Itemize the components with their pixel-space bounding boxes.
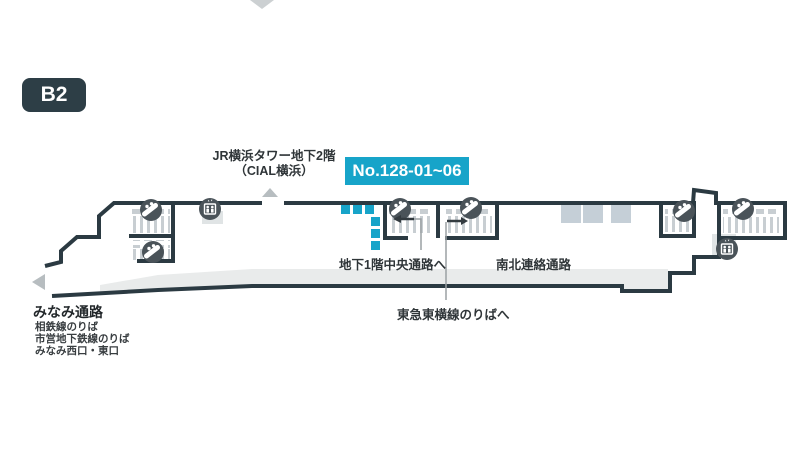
label-b1-central-passage: 地下1階中央通路へ: [339, 254, 446, 273]
label-municipal-subway: 市営地下鉄線のりば: [35, 333, 130, 345]
label-minami-west-east-exit: みなみ西口・東口: [35, 345, 130, 357]
label-sotetsu-line: 相鉄線のりば: [35, 321, 130, 333]
elevator-icon-right: [716, 238, 738, 260]
minami-left-arrow-icon: [32, 274, 45, 290]
map-edge-partial-arrow-icon: [250, 0, 274, 9]
minami-passage-sublabels: 相鉄線のりば 市営地下鉄線のりば みなみ西口・東口: [35, 321, 130, 357]
entrance-up-arrow-icon: [262, 188, 278, 197]
escalator-icon-left-lower: [142, 241, 164, 263]
elevator-icon-left: [199, 198, 221, 220]
floor-map-page: B2 JR横浜タワー地下2階 （CIAL横浜） No.128-01~06: [0, 0, 800, 450]
label-tokyu-toyoko-line: 東急東横線のりばへ: [397, 304, 510, 323]
escalator-icon-left-upper: [140, 199, 162, 221]
label-minami-passage: みなみ通路: [33, 302, 103, 322]
escalator-icon-center-tokyu: [460, 197, 482, 219]
escalator-icon-right-inner: [673, 200, 695, 222]
structure-blocks: [561, 204, 631, 223]
sign-location-markers: [341, 205, 380, 250]
floor-map: [0, 0, 800, 450]
label-north-south-passage: 南北連絡通路: [496, 254, 571, 273]
escalator-icon-right-outer: [732, 198, 754, 220]
